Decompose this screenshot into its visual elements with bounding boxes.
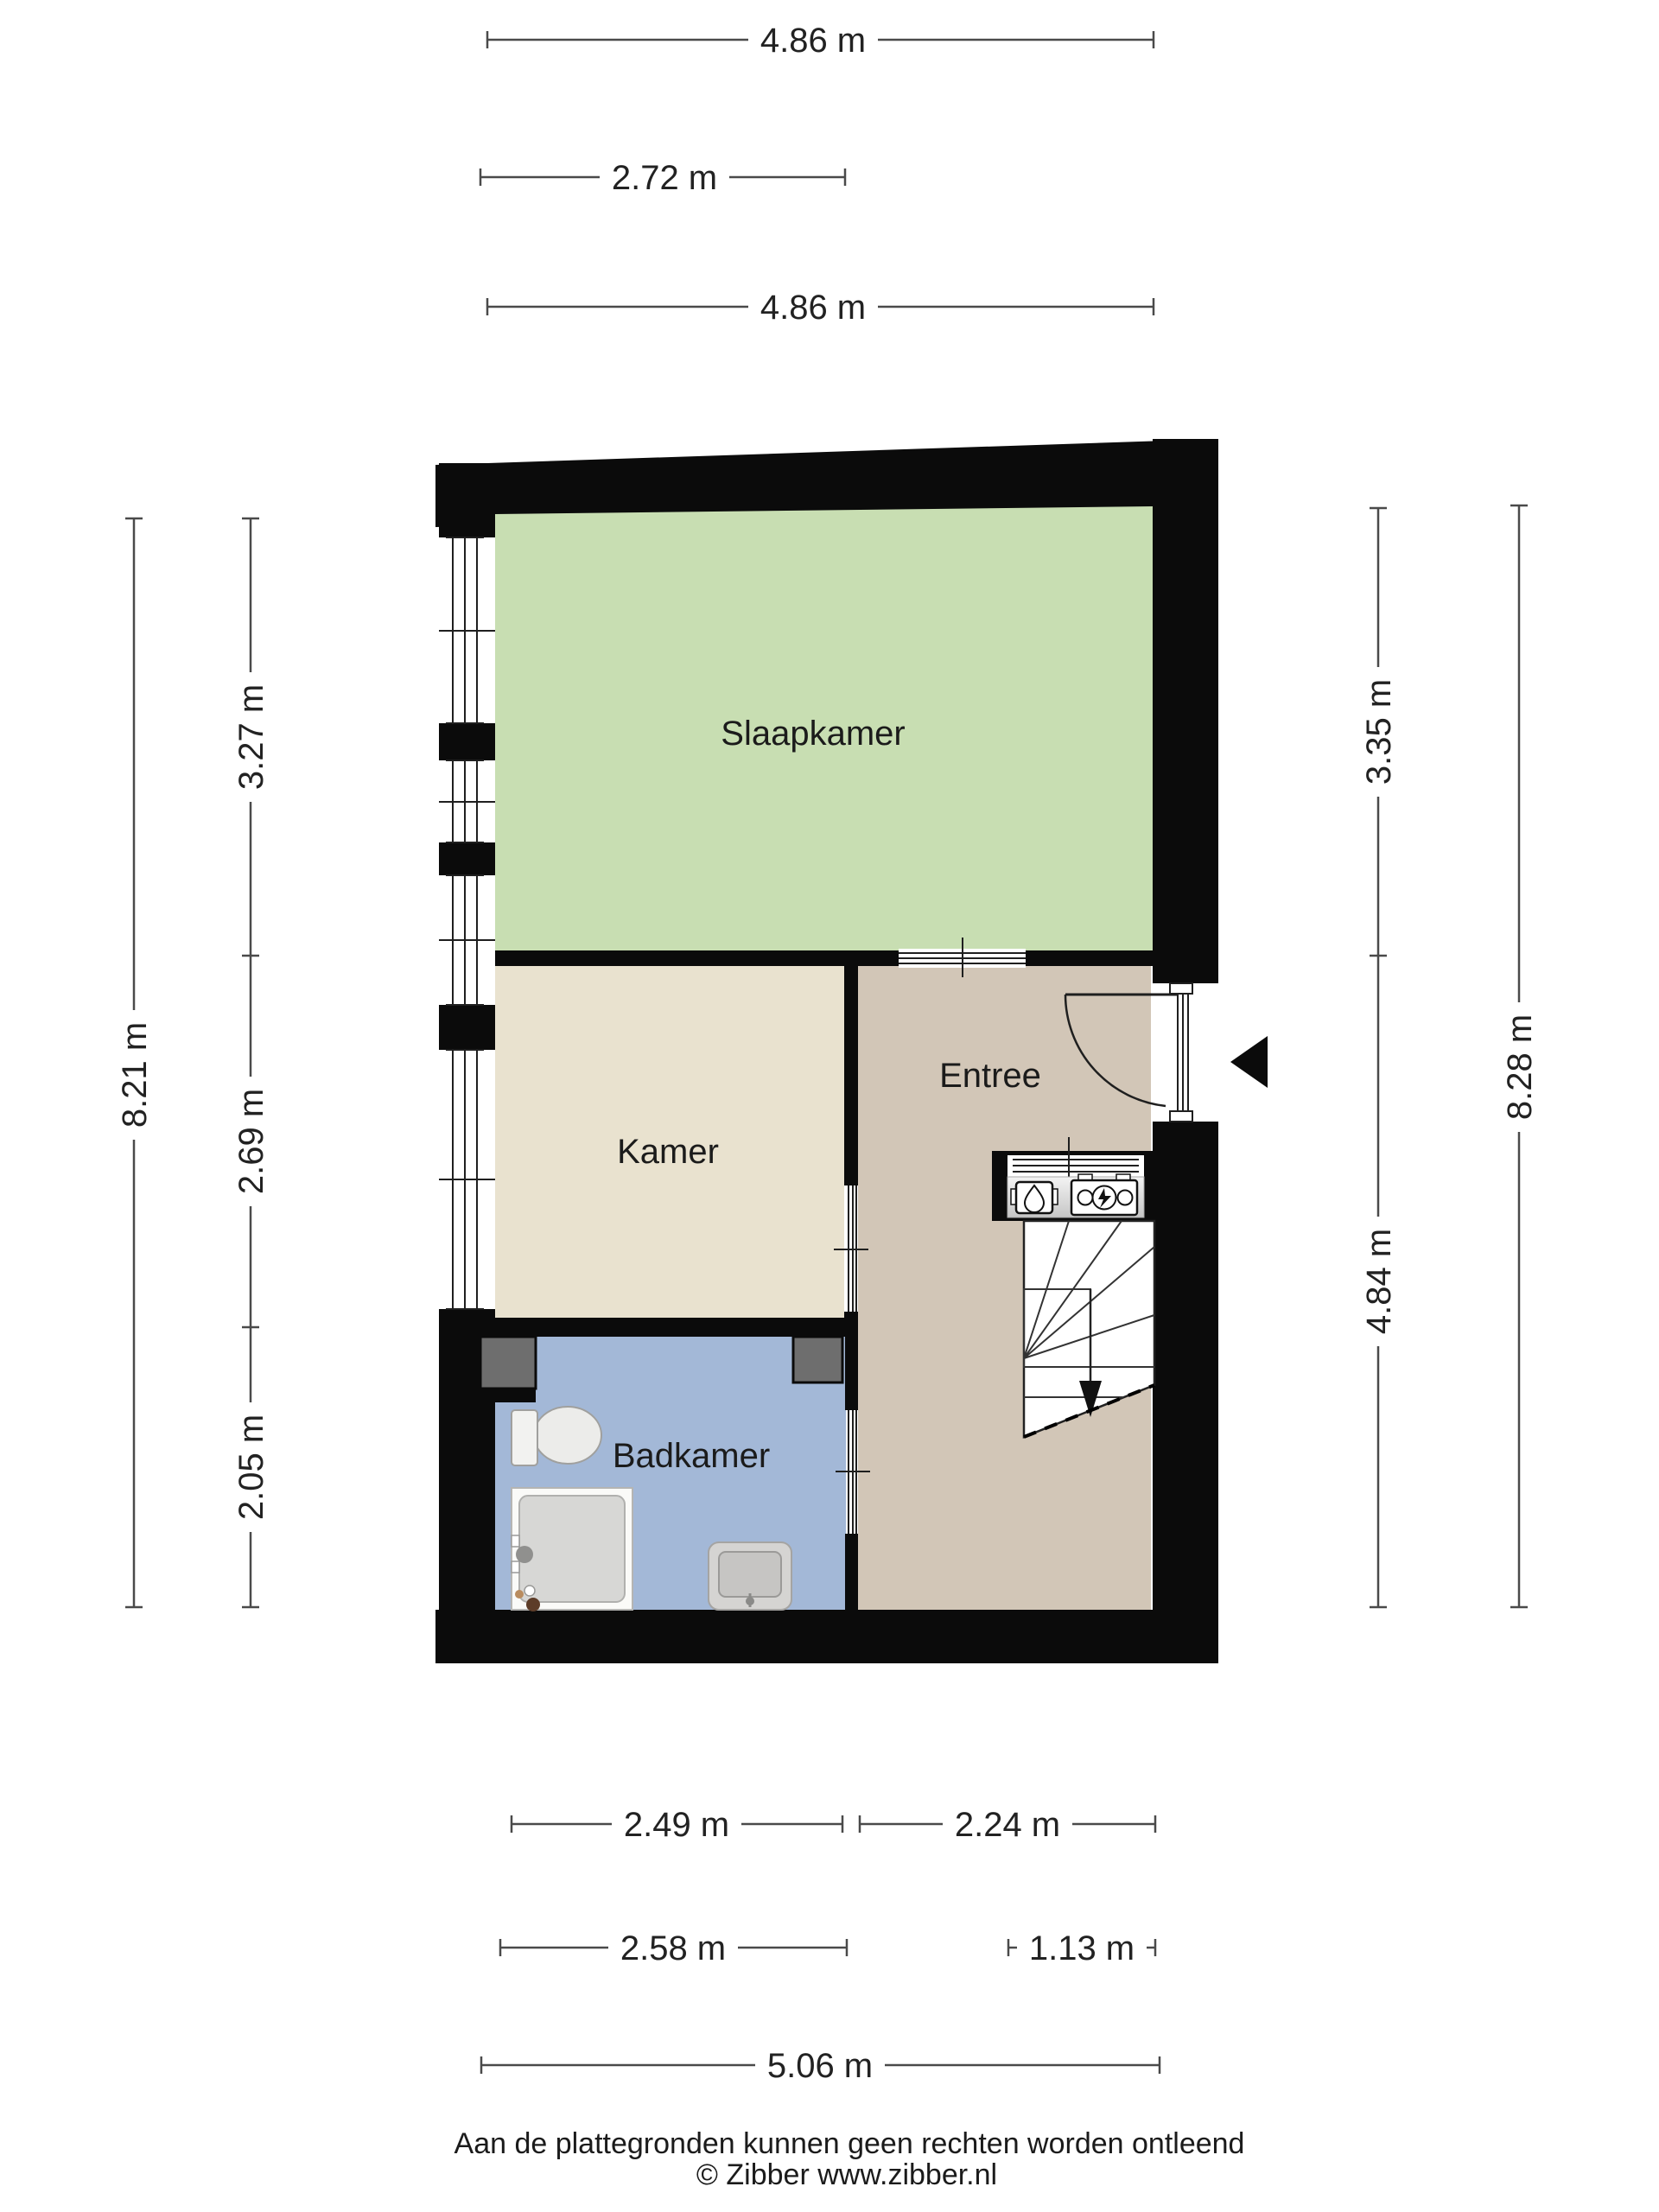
svg-text:2.24 m: 2.24 m bbox=[955, 1806, 1060, 1844]
dim-right-outer: 8.28 m bbox=[1499, 505, 1539, 1607]
window-icon bbox=[439, 1050, 495, 1309]
dim-top-width-3: 4.86 m bbox=[487, 287, 1154, 327]
floorplan-drawing: Slaapkamer Kamer Entree Badkamer 4.86 m … bbox=[0, 0, 1659, 2212]
svg-text:1.13 m: 1.13 m bbox=[1029, 1929, 1135, 1967]
windows bbox=[439, 537, 495, 1309]
svg-text:3.27 m: 3.27 m bbox=[232, 684, 270, 790]
svg-text:3.35 m: 3.35 m bbox=[1360, 679, 1398, 785]
shower-icon bbox=[512, 1488, 632, 1611]
svg-text:8.28 m: 8.28 m bbox=[1501, 1014, 1539, 1120]
room-label-kamer: Kamer bbox=[617, 1133, 719, 1171]
electricity-meter-icon bbox=[1071, 1174, 1137, 1215]
svg-text:4.86 m: 4.86 m bbox=[760, 22, 866, 60]
svg-text:2.58 m: 2.58 m bbox=[620, 1929, 726, 1967]
wall-kamer-badkamer bbox=[439, 1318, 858, 1337]
wall-kamer-entree-upper bbox=[844, 950, 858, 1185]
dim-bottom-kamer: 2.49 m bbox=[512, 1804, 842, 1844]
window-icon bbox=[439, 875, 495, 1005]
svg-text:2.72 m: 2.72 m bbox=[612, 159, 717, 197]
sink-icon bbox=[709, 1542, 791, 1610]
wall-below-badkamer-door bbox=[845, 1534, 858, 1610]
svg-text:2.05 m: 2.05 m bbox=[232, 1414, 270, 1520]
footer-copyright: © Zibber www.zibber.nl bbox=[696, 2158, 997, 2191]
room-label-entree: Entree bbox=[939, 1057, 1041, 1095]
svg-text:2.49 m: 2.49 m bbox=[624, 1806, 729, 1844]
svg-text:4.86 m: 4.86 m bbox=[760, 289, 866, 327]
dim-top-width-1: 4.86 m bbox=[487, 20, 1154, 60]
dim-bottom-entree: 2.24 m bbox=[860, 1804, 1155, 1844]
dim-left-outer: 8.21 m bbox=[114, 518, 154, 1607]
window-icon bbox=[439, 760, 495, 842]
svg-text:8.21 m: 8.21 m bbox=[116, 1022, 154, 1128]
duct-left bbox=[480, 1337, 536, 1389]
gas-meter-icon bbox=[1011, 1182, 1058, 1213]
dim-left-segments: 3.27 m 2.69 m 2.05 m bbox=[231, 518, 270, 1607]
duct-right bbox=[793, 1337, 842, 1382]
room-label-badkamer: Badkamer bbox=[613, 1437, 770, 1475]
svg-text:5.06 m: 5.06 m bbox=[767, 2047, 873, 2085]
wall-slaapkamer-south bbox=[495, 950, 1153, 966]
wall-bottom bbox=[435, 1610, 1218, 1663]
svg-text:2.69 m: 2.69 m bbox=[232, 1089, 270, 1194]
duct-left-cap bbox=[480, 1389, 536, 1402]
footer-disclaimer: Aan de plattegronden kunnen geen rechten… bbox=[454, 2127, 1245, 2160]
room-label-slaapkamer: Slaapkamer bbox=[721, 715, 905, 753]
dim-bottom-stairs: 1.13 m bbox=[1008, 1928, 1155, 1967]
dim-bottom-total-width: 5.06 m bbox=[481, 2045, 1160, 2085]
floorplan-page: Slaapkamer Kamer Entree Badkamer 4.86 m … bbox=[0, 0, 1659, 2212]
dim-top-width-2: 2.72 m bbox=[480, 157, 845, 197]
window-icon bbox=[439, 537, 495, 723]
svg-text:4.84 m: 4.84 m bbox=[1360, 1229, 1398, 1334]
dim-bottom-badkamer: 2.58 m bbox=[500, 1928, 847, 1967]
wall-badkamer-door-post bbox=[845, 1337, 858, 1410]
dim-right-segments: 3.35 m 4.84 m bbox=[1358, 508, 1398, 1607]
entrance-arrow-icon bbox=[1230, 1036, 1268, 1088]
toilet-icon bbox=[512, 1407, 601, 1465]
